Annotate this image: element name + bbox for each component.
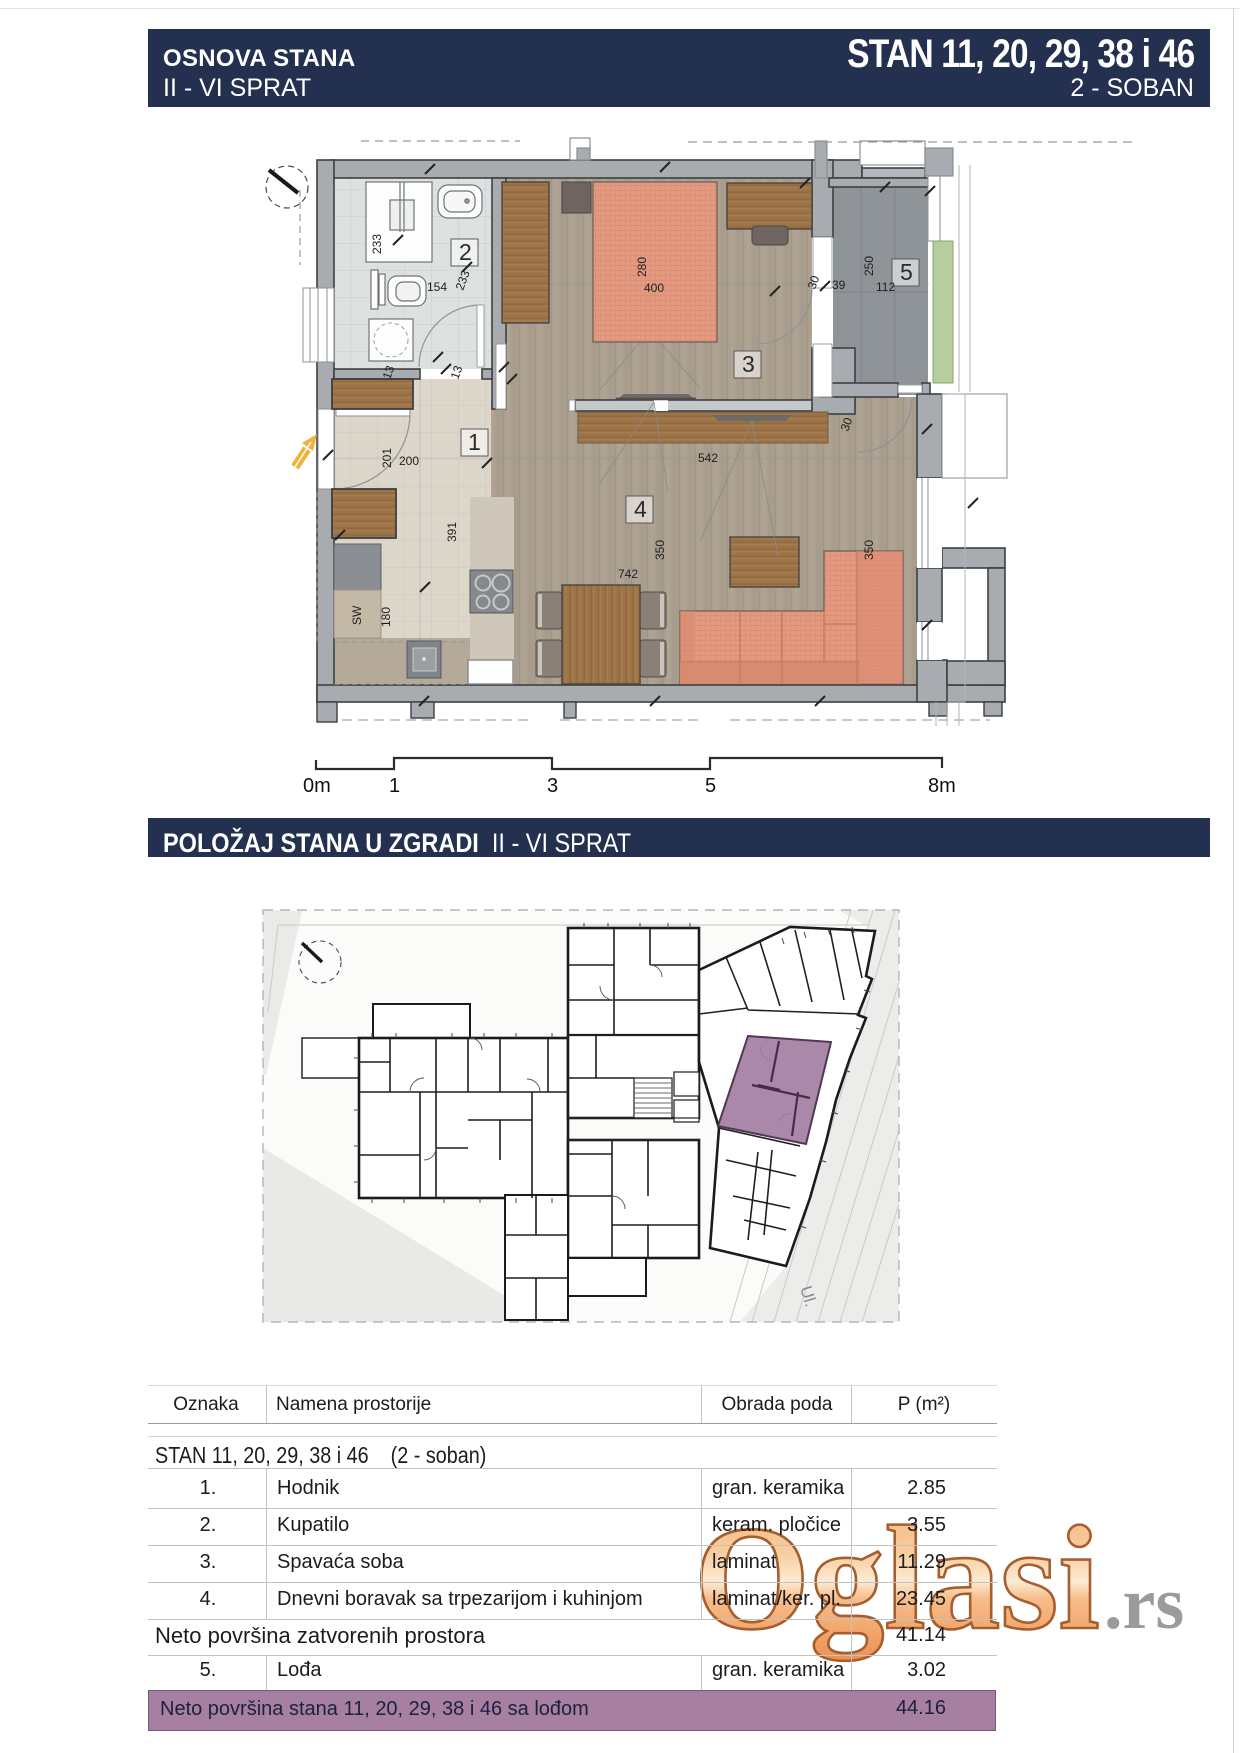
svg-text:742: 742 xyxy=(618,567,638,581)
svg-text:5: 5 xyxy=(900,259,913,285)
svg-text:2: 2 xyxy=(459,239,472,265)
svg-text:8m: 8m xyxy=(928,775,956,797)
svg-text:250: 250 xyxy=(862,256,876,276)
svg-text:0m: 0m xyxy=(303,775,331,797)
svg-text:3: 3 xyxy=(742,351,755,377)
svg-text:280: 280 xyxy=(635,257,649,277)
svg-text:391: 391 xyxy=(445,522,459,542)
svg-text:4: 4 xyxy=(634,496,647,522)
svg-text:201: 201 xyxy=(380,448,394,468)
svg-text:400: 400 xyxy=(644,281,664,295)
svg-text:350: 350 xyxy=(653,540,667,560)
svg-text:233: 233 xyxy=(370,234,384,254)
svg-text:542: 542 xyxy=(698,451,718,465)
svg-text:154: 154 xyxy=(427,280,447,294)
svg-text:200: 200 xyxy=(399,454,419,468)
svg-text:3: 3 xyxy=(547,775,558,797)
svg-text:5: 5 xyxy=(705,775,716,797)
svg-text:39: 39 xyxy=(832,278,846,292)
svg-text:SW: SW xyxy=(350,605,364,625)
svg-text:180: 180 xyxy=(379,607,393,627)
svg-text:1: 1 xyxy=(389,775,400,797)
svg-text:.rs: .rs xyxy=(1104,1563,1184,1645)
svg-text:350: 350 xyxy=(862,540,876,560)
svg-text:1: 1 xyxy=(468,429,481,455)
svg-text:112: 112 xyxy=(876,280,895,294)
